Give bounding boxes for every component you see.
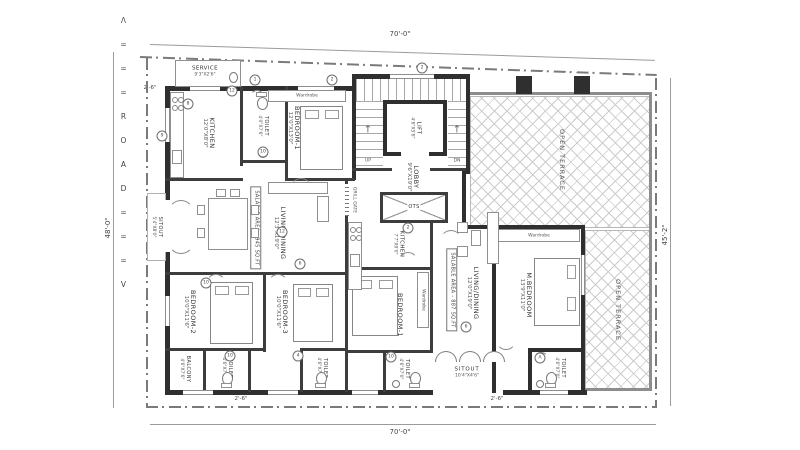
- wall-segment: [352, 168, 392, 171]
- room-label-sitout-east: SITOUT 10'4"X4'6": [455, 367, 480, 380]
- room-name: BALCONY: [185, 356, 192, 383]
- door-window-tag: 10: [201, 278, 212, 289]
- hob-burner: [356, 235, 362, 241]
- wall-segment: [430, 220, 433, 353]
- wc-tank: [315, 383, 326, 388]
- stair-up-arrow-icon: ↑: [364, 125, 372, 136]
- wc-tank: [409, 383, 420, 388]
- wall-segment: [380, 220, 448, 223]
- room-name: LIVING/DINING: [471, 267, 479, 320]
- wardrobe-label: Wardrobe: [296, 94, 318, 99]
- room-label-bedroom2-west: BEDROOM-2 10'0"X11'6": [181, 290, 197, 334]
- door-swing: [168, 200, 194, 226]
- stair-dn-arrow-icon: ↑: [453, 125, 461, 136]
- bed: [300, 106, 343, 170]
- room-dim: 4'6"X7'0": [398, 358, 404, 379]
- room-label-open-terrace-se: OPEN TERRACE: [614, 279, 622, 341]
- pillow: [567, 297, 576, 311]
- dining-chair: [230, 189, 240, 197]
- room-dim: 10'4"X4'6": [455, 374, 479, 380]
- dining-chair: [216, 189, 226, 197]
- room-name: LIFT: [414, 122, 421, 135]
- door-window-tag: 1: [250, 75, 261, 86]
- armchair: [457, 222, 468, 233]
- door-window-tag: 10: [386, 352, 397, 363]
- wall-segment: [203, 348, 206, 392]
- wall-segment: [528, 348, 532, 393]
- sofa: [317, 196, 329, 222]
- room-name: OPEN TERRACE: [614, 279, 622, 341]
- stair-dn-label: DN: [454, 159, 461, 164]
- terrace-pier: [516, 76, 532, 94]
- room-name: BEDROOM-3: [280, 290, 288, 334]
- wall-segment: [466, 74, 470, 174]
- grill-gate: [345, 184, 349, 216]
- dining-table: [208, 198, 248, 250]
- room-label-lobby: LOBBY 9'6"X19'0": [404, 162, 420, 191]
- grill-gate-label: GRILL GATE: [352, 187, 357, 213]
- dimension-top: 70'-0": [389, 30, 410, 38]
- pillow: [379, 280, 393, 289]
- wall-segment: [165, 178, 243, 181]
- road-label: Λ===ROAD===V: [119, 16, 128, 304]
- door-swing: [398, 252, 418, 272]
- hob-burner: [356, 227, 362, 233]
- room-dim: 10'0"X11'6": [181, 296, 188, 329]
- stair-up-label: UP: [365, 159, 371, 164]
- room-label-open-terrace-ne: OPEN TERRACE: [558, 129, 566, 191]
- window: [190, 86, 220, 91]
- terrace-parapet-bottom: [585, 388, 652, 391]
- room-label-sitout-west: SITOUT 5'4"X8'0": [151, 216, 163, 237]
- wall-segment: [462, 168, 466, 228]
- pillow: [316, 288, 329, 297]
- dining-chair: [197, 205, 205, 215]
- door-window-tag: 10: [258, 147, 269, 158]
- window: [183, 390, 213, 395]
- pillow: [325, 110, 339, 119]
- room-label-bedroom1-west: BEDROOM-1 12'0"X13'0": [285, 106, 301, 150]
- lift-wall: [383, 100, 387, 156]
- wall-segment: [300, 348, 345, 351]
- window: [165, 296, 170, 326]
- dimension-right: 45'-2": [661, 224, 669, 245]
- door-swing: [440, 230, 462, 252]
- salable-area-east: SALABLE AREA - 887 SQ.FT: [447, 248, 458, 331]
- room-name: M.BEDROOM: [524, 272, 532, 317]
- window: [268, 390, 298, 395]
- wash-basin: [392, 380, 400, 388]
- terrace-parapet-top: [470, 92, 652, 95]
- door-window-tag: 6: [461, 322, 472, 333]
- room-dim: 5'4"X8'0": [151, 216, 157, 237]
- dimension-left: 48'-0": [104, 217, 112, 238]
- window: [352, 390, 378, 395]
- terrace-pier: [574, 76, 590, 94]
- room-dim: 4'6"X7'6": [179, 358, 185, 379]
- door-window-tag: 12: [227, 86, 238, 97]
- stair-treads: [356, 79, 466, 101]
- wardrobe-label: Wardrobe: [528, 234, 550, 239]
- lift-wall: [383, 100, 447, 104]
- door-window-tag: 4: [293, 351, 304, 362]
- room-dim: 7'7"X9'0": [392, 233, 398, 254]
- room-name: BEDROOM-2: [188, 290, 196, 334]
- dining-chair: [197, 228, 205, 238]
- door-window-tag: 2: [403, 223, 414, 234]
- window: [540, 390, 568, 395]
- room-label-living-east: LIVING/DINING 12'0"X19'0": [464, 267, 480, 320]
- room-dim: 13'9"X11'0": [517, 279, 524, 312]
- dining-chair: [251, 228, 259, 238]
- door-swing: [168, 228, 194, 254]
- door-window-tag: 8: [183, 99, 194, 110]
- wall-segment: [445, 192, 448, 223]
- room-name: SITOUT: [157, 217, 164, 238]
- door-window-tag: 12: [277, 227, 288, 238]
- wall-segment: [240, 86, 243, 166]
- wc-tank: [545, 383, 556, 388]
- room-label-bedroom3-west: BEDROOM-3 10'0"X11'6": [273, 290, 289, 334]
- room-label-toilet-east-1: TOILET 4'6"X7'0": [398, 358, 410, 379]
- dimension-line-left: [113, 52, 114, 408]
- window: [390, 74, 434, 79]
- door-window-tag: 9: [157, 131, 168, 142]
- wall-segment: [528, 348, 581, 352]
- sitout-arch: [459, 351, 481, 362]
- pillow: [567, 265, 576, 279]
- bed: [293, 284, 333, 342]
- room-label-balcony: BALCONY 4'6"X7'6": [179, 356, 191, 383]
- wall-segment: [581, 225, 585, 395]
- salable-area-text: SALABLE AREA - 887 SQ.FT: [447, 248, 458, 331]
- window: [581, 255, 585, 295]
- room-dim: 10'0"X11'6": [273, 296, 280, 329]
- room-name: KITCHEN: [207, 118, 215, 149]
- room-label-ots: OTS: [407, 204, 420, 211]
- door-swing: [290, 178, 312, 200]
- service-sink: [229, 72, 238, 83]
- room-dim: 12'0"X8'0": [200, 118, 207, 147]
- dimension-line-bottom: [150, 424, 656, 425]
- room-dim: 12'0"X13'0": [285, 112, 292, 145]
- door-window-tag: 10: [225, 351, 236, 362]
- room-label-mbedroom: M.BEDROOM 13'9"X11'0": [517, 272, 533, 317]
- plot-boundary-right: [655, 78, 657, 408]
- door-window-tag: A: [535, 353, 546, 364]
- door-swing: [268, 274, 288, 294]
- terrace-parapet-right: [649, 92, 652, 390]
- pillow: [298, 288, 311, 297]
- door-swing: [496, 330, 516, 350]
- door-window-tag: 2: [327, 75, 338, 86]
- room-label-kitchen-west: KITCHEN 12'0"X8'0": [200, 118, 216, 149]
- sitout-arch: [435, 351, 457, 362]
- lift-wall: [429, 152, 447, 156]
- wardrobe-label: Wardrobe: [421, 289, 426, 311]
- room-name: OPEN TERRACE: [558, 129, 566, 191]
- wc-tank: [221, 383, 232, 388]
- door-swing: [250, 90, 264, 104]
- plot-boundary-bottom: [146, 406, 657, 408]
- wash-basin: [536, 380, 544, 388]
- sitout-arch: [483, 351, 505, 362]
- pillow: [305, 110, 319, 119]
- door-window-tag: 6: [295, 259, 306, 270]
- sofa: [487, 212, 499, 264]
- room-label-service: SERVICE 9'3"X2'6": [192, 66, 218, 79]
- room-dim: 9'6"X19'0": [404, 162, 411, 191]
- dimension-offset-bottom-right: 2'-6": [490, 396, 503, 402]
- floor-plan-sheet: 70'-0" 70'-0" 48'-0" 45'-2" 2'-6" 2'-6" …: [0, 0, 800, 450]
- room-dim: 4'6"X5'6": [409, 117, 415, 138]
- door-window-tag: 2: [417, 63, 428, 74]
- wall-segment: [165, 272, 348, 275]
- coffee-table: [471, 230, 481, 246]
- room-dim: 4'0"X7'6": [257, 115, 263, 136]
- wall-segment: [430, 168, 466, 171]
- kitchen-sink: [350, 254, 360, 267]
- room-label-lift: LIFT 4'6"X5'6": [409, 117, 422, 138]
- room-name: OTS: [407, 204, 420, 211]
- wall-segment: [263, 272, 266, 352]
- room-dim: 9'3"X2'6": [194, 73, 215, 79]
- wall-segment: [248, 348, 251, 392]
- bed: [534, 258, 580, 326]
- lift-wall: [383, 152, 401, 156]
- pillow: [235, 286, 249, 295]
- room-name: TOILET: [560, 358, 567, 378]
- kitchen-sink: [172, 150, 182, 164]
- window: [298, 86, 334, 91]
- dimension-bottom: 70'-0": [389, 428, 410, 436]
- lift-wall: [443, 100, 447, 156]
- dimension-line-right: [670, 78, 671, 406]
- room-name: TOILET: [263, 116, 270, 136]
- room-label-toilet-west-top: TOILET 4'0"X7'6": [257, 115, 269, 136]
- room-dim: 12'0"X19'0": [464, 277, 471, 310]
- dining-chair: [251, 205, 259, 215]
- wall-segment: [240, 160, 288, 163]
- dimension-offset-bottom-left: 2'-6": [234, 396, 247, 402]
- room-name: LOBBY: [411, 165, 419, 188]
